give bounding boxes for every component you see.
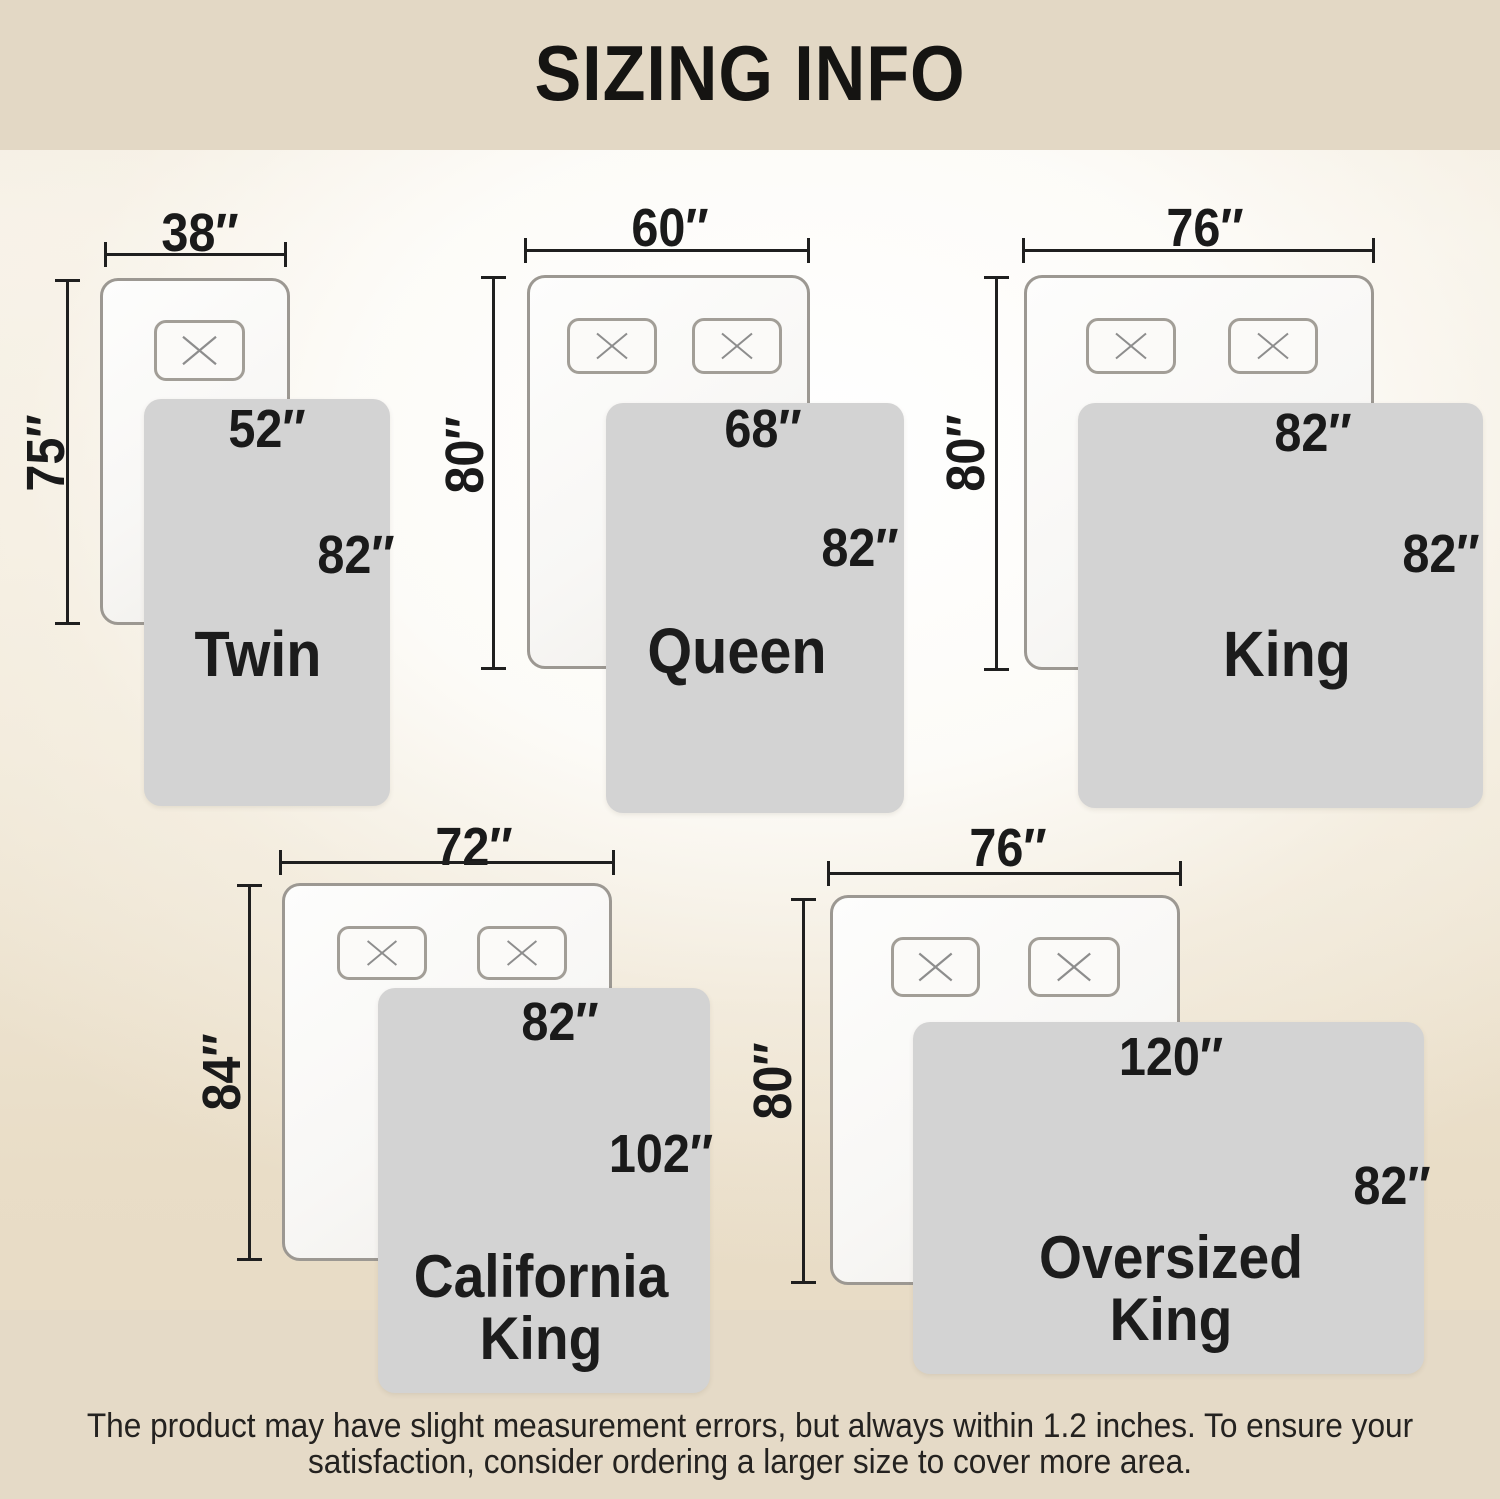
oversized-pillow-left xyxy=(891,937,980,997)
dimension-tick xyxy=(1179,861,1182,886)
pillow-x-icon xyxy=(894,940,977,994)
oversized-name-line2: King xyxy=(987,1289,1355,1351)
oversized-blanket-length-label: 82″ xyxy=(1320,1159,1464,1213)
footer-note-line2: satisfaction, consider ordering a larger… xyxy=(53,1444,1448,1480)
oversized-width-dimension-line xyxy=(828,872,1182,875)
oversized-blanket-width-label: 120″ xyxy=(1081,1030,1261,1084)
sizing-info-graphic: SIZING INFO 38″ 75″ 52″ 82″ Twin 60″ 80″ xyxy=(0,0,1500,1499)
oversized-bed-width-label: 76″ xyxy=(936,821,1080,875)
footer-note: The product may have slight measurement … xyxy=(0,1408,1500,1480)
dimension-tick xyxy=(791,898,816,901)
pillow-x-icon xyxy=(1031,940,1117,994)
oversized-pillow-right xyxy=(1028,937,1120,997)
size-group-oversized-king: 76″ 80″ 120″ 82″ Oversized King xyxy=(0,0,1500,1499)
oversized-name-line1: Oversized xyxy=(987,1227,1355,1289)
oversized-name-label: Oversized King xyxy=(987,1227,1355,1351)
footer-note-line1: The product may have slight measurement … xyxy=(53,1408,1448,1444)
dimension-tick xyxy=(791,1281,816,1284)
oversized-bed-length-label: 80″ xyxy=(746,1027,800,1135)
dimension-tick xyxy=(827,861,830,886)
